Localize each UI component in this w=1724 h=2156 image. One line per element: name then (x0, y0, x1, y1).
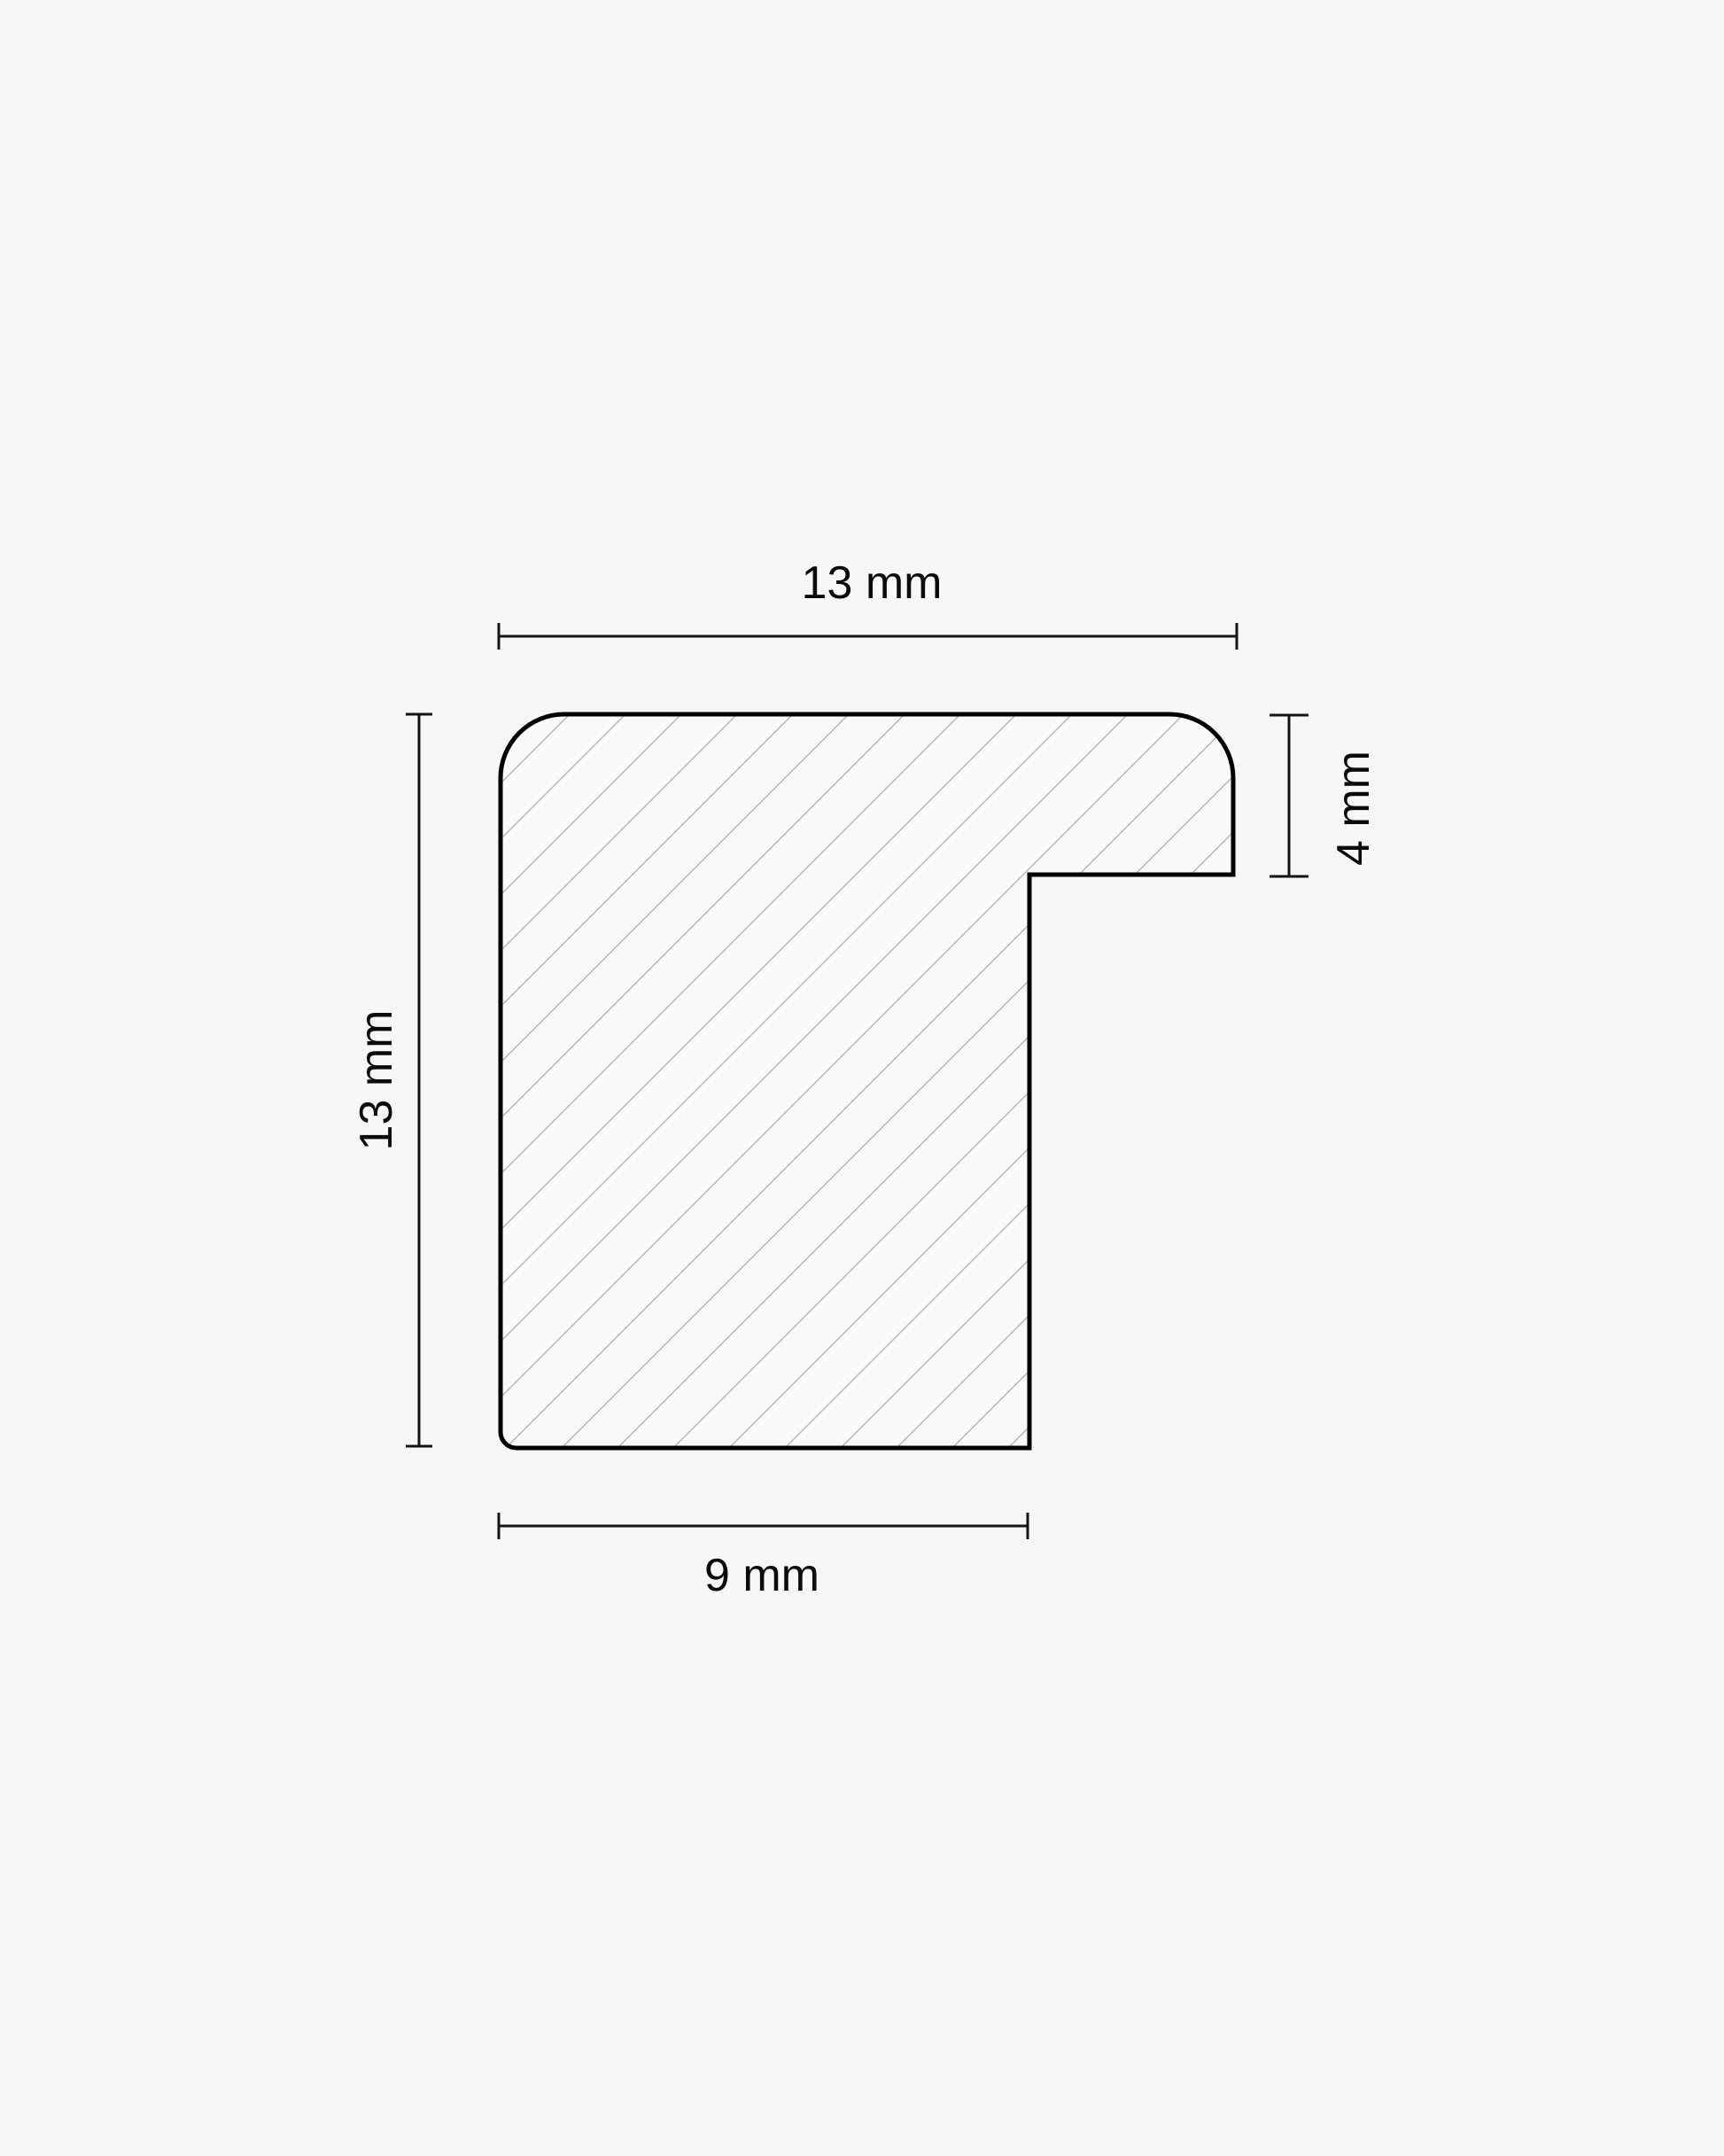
dim-label-bottom-width: 9 mm (704, 1550, 819, 1601)
profile-cross-section-diagram: 13 mm 13 mm 4 mm 9 mm (0, 0, 1724, 2156)
drawing-canvas: 13 mm 13 mm 4 mm 9 mm (0, 0, 1724, 2156)
dim-label-right-depth: 4 mm (1328, 751, 1379, 866)
dim-label-top-width: 13 mm (802, 557, 943, 609)
dim-label-left-height: 13 mm (351, 1010, 402, 1151)
